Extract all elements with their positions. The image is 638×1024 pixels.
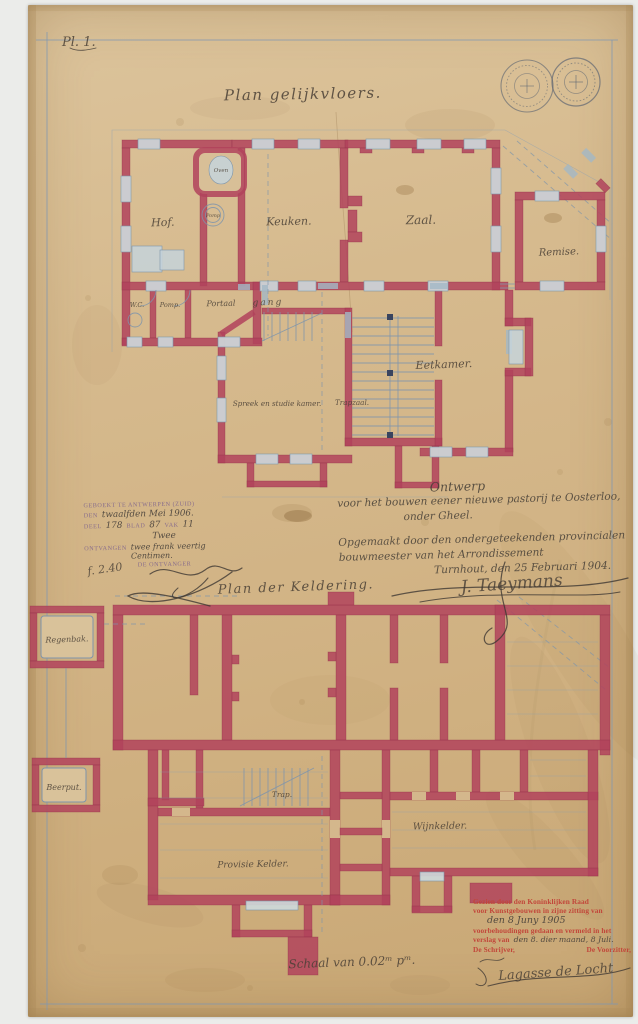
ground-floor-walls: [122, 140, 605, 488]
seal-right-icon: [552, 58, 600, 106]
plate-label: Pl. 1.: [61, 35, 96, 50]
room-label-wc: W.C.: [130, 301, 144, 309]
room-label-pomp: Pomp.: [159, 301, 180, 309]
room-label-keuken: Keuken.: [265, 215, 312, 229]
approval-verslag-value: den 8. dier maand, 8 Juli.: [514, 935, 614, 944]
room-label-oven: Oven: [214, 168, 229, 174]
registration-date-value: twaalfden Mei 1906.: [102, 508, 194, 520]
registration-amount-value: twee frank veertig Centimen.: [131, 541, 245, 561]
seal-left-icon: [501, 60, 553, 112]
room-label-pomp-scullery: Pomp: [205, 213, 221, 219]
room-label-portaal: Portaal: [205, 299, 236, 309]
approval-line4: voorbehoudingen gedaan en vermeld in het: [473, 926, 631, 935]
room-label-beerput: Beerput.: [45, 783, 81, 792]
ground-floor-piers: [238, 283, 512, 354]
approval-date: den 8 Juny 1905: [487, 916, 631, 926]
registration-deel-value: 178: [106, 521, 123, 531]
room-label-hof: Hof.: [150, 216, 175, 230]
room-label-zaal: Zaal.: [405, 213, 437, 228]
room-label-trapzaal: Trapzaal.: [335, 398, 369, 407]
ground-floor-title: Plan gelijkvloers.: [223, 84, 382, 105]
registration-blad-label: BLAD: [126, 522, 145, 529]
approval-stamp: Gezien door den Koninklijken Raad voor K…: [473, 897, 631, 954]
registration-deel-label: DEEL: [84, 523, 102, 530]
approval-schrijver-title: De Schrijver,: [473, 945, 515, 954]
registration-ontvanger-label: DE ONTVANGER: [138, 561, 192, 569]
registration-vak-label: VAK: [164, 522, 178, 529]
room-label-provisie-kelder: Provisie Kelder.: [216, 859, 289, 870]
registration-vak-value: 11: [183, 519, 194, 529]
approval-verslag-label: verslag van: [473, 935, 510, 944]
registration-stamp: GEBOEKT TE ANTWERPEN (ZUID) DEN twaalfde…: [83, 500, 244, 570]
scanned-drawing-sheet: Pl. 1.: [0, 0, 638, 1024]
registration-blad-value: 87: [149, 520, 160, 530]
room-label-regenbak: Regenbak.: [44, 634, 88, 645]
room-label-remise: Remise.: [538, 246, 580, 258]
registration-ontvangen-label: ONTVANGEN: [84, 545, 127, 553]
room-label-eetkamer: Eetkamer.: [414, 357, 472, 372]
registration-den-label: DEN: [84, 512, 98, 519]
approval-voorzitter-title: De Voorzitter,: [587, 945, 632, 954]
room-label-spreek-studiekamer: Spreek en studie kamer.: [233, 399, 322, 408]
room-label-wijnkelder: Wijnkelder.: [413, 821, 468, 833]
registration-twee-value: Twee: [152, 531, 176, 541]
ground-floor-plan: Plan gelijkvloers. Hof. Oven Pomp Keuken…: [112, 84, 612, 497]
room-label-gang: gang: [252, 297, 283, 308]
approval-line1: Gezien door den Koninklijken Raad: [473, 897, 631, 906]
design-note: Ontwerp voor het bouwen eener nieuwe pas…: [337, 474, 635, 581]
room-label-trap: Trap.: [272, 790, 292, 799]
